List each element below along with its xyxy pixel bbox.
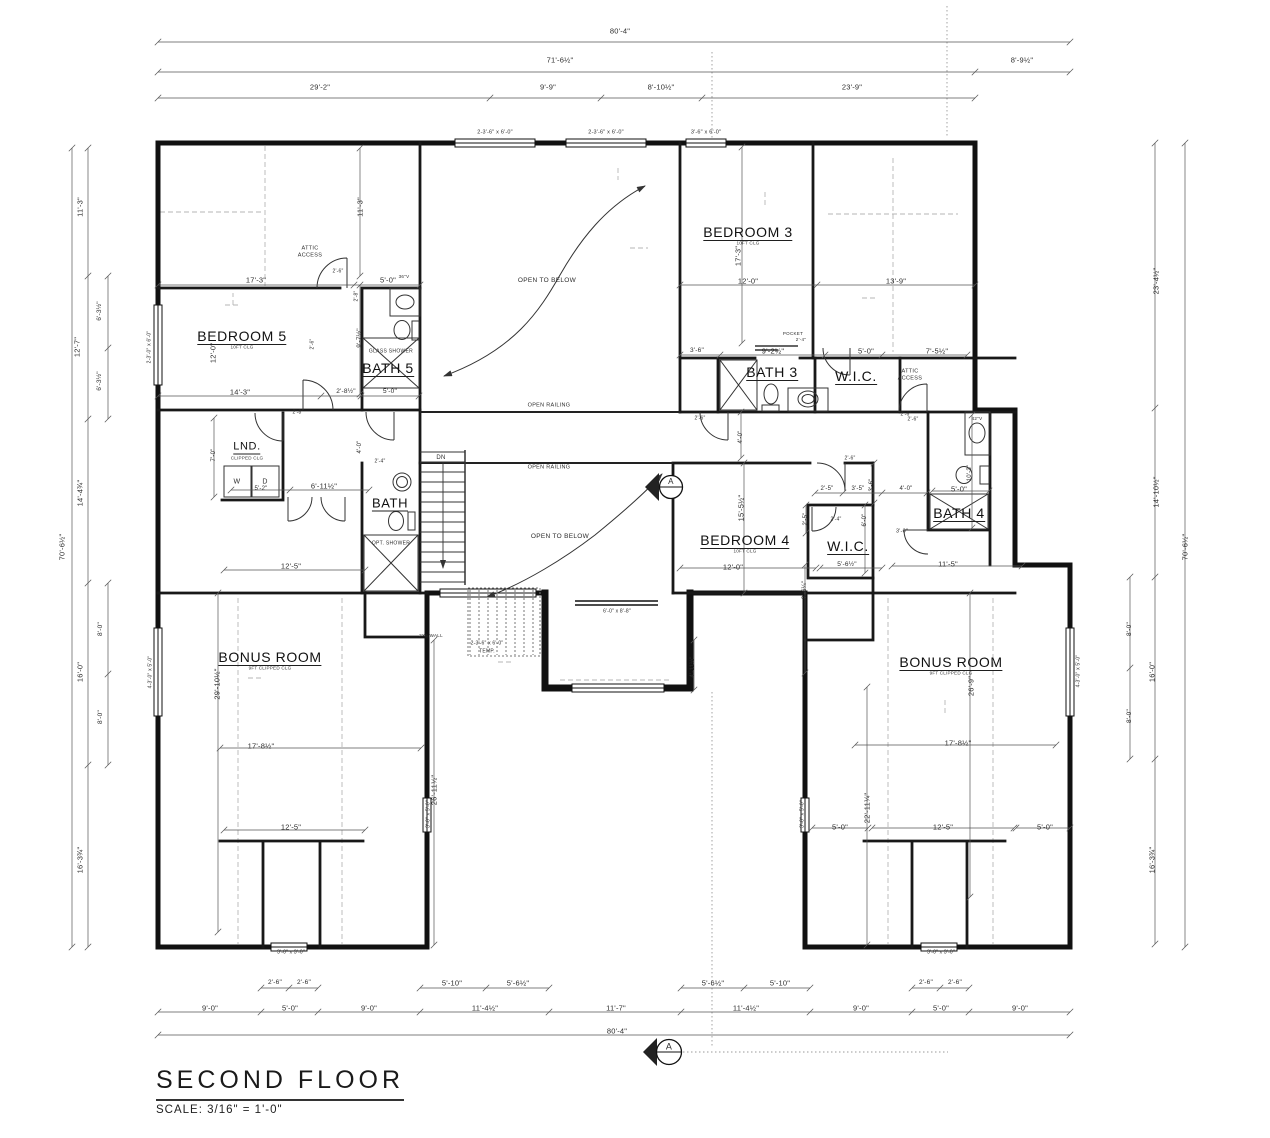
dimension-label: 2'-6"	[333, 270, 344, 275]
dimension-label: 8'-0"	[1127, 709, 1134, 723]
dimension-label: 7'-5½"	[926, 347, 948, 355]
dimension-label: 9'-0"	[361, 1004, 377, 1012]
dimension-label: 6'-0"	[862, 514, 868, 527]
dimension-label: 16'-0"	[76, 662, 84, 682]
dimension-label: 5'-0"	[832, 823, 848, 831]
dimension-label: 3'-0" x 5'-0"	[427, 800, 432, 828]
annotation-label: A	[666, 1043, 672, 1052]
dimension-label: 17'-3"	[734, 246, 742, 266]
dimension-label: 11'-3"	[76, 197, 84, 217]
dimension-label: 2'-6"	[311, 339, 316, 350]
room-ceiling-note: 9FT CLIPPED CLG	[249, 667, 292, 672]
annotation-label: OPEN RAILING	[528, 403, 571, 409]
label-layer: BEDROOM 510FT CLGBATH 5BEDROOM 310FT CLG…	[0, 0, 1270, 1138]
dimension-label: 2'-5"	[803, 513, 809, 526]
room-label: BATH 3	[746, 365, 798, 381]
room-label: BATH	[372, 497, 408, 512]
annotation-label: ACCESS	[298, 253, 322, 259]
room-label: BONUS ROOM	[218, 650, 321, 666]
dimension-label: 3'-0"	[896, 529, 908, 535]
dimension-label: 2'-6"	[901, 413, 912, 418]
room-ceiling-note: 10FT CLG	[231, 346, 254, 351]
annotation-label: OPEN TO BELOW	[518, 278, 576, 285]
dimension-label: 2'-6"	[695, 417, 706, 422]
annotation-label: OPEN TO BELOW	[531, 534, 589, 541]
annotation-label: OPEN RAILING	[528, 465, 571, 471]
dimension-label: 3'-0" x 3'-0"	[277, 951, 305, 956]
dimension-label: 5'-0"	[282, 1004, 298, 1012]
dimension-label: 8'-9½"	[1011, 56, 1033, 64]
annotation-label: ATTIC	[302, 246, 319, 252]
dimension-label: 4'-0"	[357, 441, 363, 454]
dimension-label: 3'-6"	[869, 479, 875, 492]
room-ceiling-note: 10FT CLG	[734, 550, 757, 555]
dimension-label: 8'-0"	[1127, 622, 1134, 636]
dimension-label: 2'-6"	[919, 980, 933, 987]
dimension-label: 12'-5"	[281, 823, 301, 831]
dimension-label: 4-3'-0" x 5'-0"	[1077, 655, 1082, 688]
room-label: W.I.C.	[827, 539, 869, 555]
dimension-label: 80'-4"	[610, 27, 630, 35]
dimension-label: 12'-7"	[73, 337, 81, 357]
dimension-label: 2'-8"	[355, 291, 360, 302]
dimension-label: 5'-0"	[951, 485, 967, 493]
dimension-label: 3'-0" x 3'-0"	[927, 951, 955, 956]
dimension-label: 7'-0"	[211, 449, 217, 462]
dimension-label: 29'-10½"	[213, 668, 221, 699]
dimension-label: 2-3'-0" x 6'-0"	[148, 331, 153, 364]
dimension-label: 11'-7"	[606, 1004, 626, 1012]
dimension-label: TEMP.	[479, 650, 495, 655]
dimension-label: 2'-6"	[948, 980, 962, 987]
dimension-label: 9'-0"	[853, 1004, 869, 1012]
drawing-title: SECOND FLOOR	[156, 1066, 404, 1101]
dimension-label: 4'-11½"	[690, 656, 696, 677]
dimension-label: 2-3'-6" x 6'-0"	[477, 130, 513, 136]
room-label: BEDROOM 4	[700, 533, 789, 549]
dimension-label: 23'-4½"	[1152, 268, 1160, 295]
dimension-label: 3'-6" x 6'-0"	[691, 130, 721, 136]
dimension-label: 9'-2½"	[762, 347, 784, 355]
dimension-label: 2'-6"	[908, 418, 919, 423]
dimension-label: 5'-10"	[770, 979, 790, 987]
dimension-label: 3'-6"	[690, 348, 704, 355]
dimension-label: 2'-6"	[845, 457, 856, 462]
room-label: BEDROOM 3	[703, 225, 792, 241]
dimension-label: 4'-0"	[900, 486, 913, 492]
dimension-label: 71'-6½"	[547, 56, 574, 64]
dimension-label: 70'-6½"	[1181, 534, 1189, 561]
dimension-label: 14'-3"	[230, 388, 250, 396]
room-label: W.I.C.	[835, 369, 877, 385]
annotation-label: DN	[436, 455, 445, 461]
annotation-label: W	[234, 479, 241, 486]
dimension-label: 5'-10"	[442, 979, 462, 987]
annotation-label: 2'-4"	[796, 338, 806, 343]
dimension-label: 5'-2"	[255, 486, 268, 492]
room-label: BATH 4	[933, 506, 985, 522]
annotation-label: ACCESS	[898, 376, 922, 382]
dimension-label: 17'-8½"	[248, 742, 275, 750]
dimension-label: 5'-0"	[933, 1004, 949, 1012]
dimension-label: 2-3'-6" x 6'-0"	[471, 642, 504, 647]
dimension-label: 17'-8½"	[945, 739, 972, 747]
dimension-label: 2-3'-6" x 6'-0"	[588, 130, 624, 136]
annotation-label: D	[262, 479, 267, 486]
dimension-label: 2'-4"	[831, 518, 842, 523]
dimension-label: 6'-3½"	[97, 301, 104, 321]
dimension-label: 17'-3"	[246, 276, 266, 284]
dimension-label: 29'-2"	[310, 83, 330, 91]
room-label: LND.	[233, 442, 260, 455]
dimension-label: 11'-4½"	[472, 1004, 498, 1012]
dimension-label: 12'-0"	[723, 563, 743, 571]
dimension-label: 9'-7½"	[357, 328, 364, 348]
dimension-label: 5'-6½"	[702, 979, 724, 987]
dimension-label: 16'-3¾"	[1148, 847, 1156, 874]
dimension-label: 6'-3½"	[97, 371, 104, 391]
dimension-label: 26'-9"	[967, 676, 975, 696]
dimension-label: 5'-0"	[383, 389, 397, 396]
dimension-label: 5'-0"	[380, 276, 396, 284]
dimension-label: 22'-11¼"	[863, 793, 871, 824]
dimension-label: 12'-0"	[209, 343, 217, 363]
floorplan-sheet: BEDROOM 510FT CLGBATH 5BEDROOM 310FT CLG…	[0, 0, 1270, 1138]
dimension-label: 16'-0"	[1148, 662, 1156, 682]
dimension-label: 8'-10½"	[648, 83, 675, 91]
annotation-label: 2X6 WALL	[419, 634, 443, 639]
dimension-label: 2'-6"	[297, 980, 311, 987]
dimension-label: 14'-10½"	[1152, 476, 1160, 507]
dimension-label: 12'-0"	[738, 277, 758, 285]
dimension-label: 23'-9"	[842, 83, 862, 91]
dimension-label: 8'-0"	[98, 710, 105, 724]
dimension-label: 9'-6¼"	[802, 581, 808, 599]
dimension-label: 12'-5"	[281, 562, 301, 570]
annotation-label: POCKET	[783, 332, 803, 337]
room-ceiling-note: CLIPPED CLG	[231, 457, 264, 462]
dimension-label: 13'-9"	[886, 277, 906, 285]
dimension-label: 80'-4"	[607, 1027, 627, 1035]
drawing-scale: SCALE: 3/16" = 1'-0"	[156, 1104, 404, 1116]
dimension-label: 12'-5"	[933, 823, 953, 831]
annotation-label: GLASS SHOWER	[369, 350, 413, 355]
dimension-label: 5'-0"	[858, 347, 874, 355]
dimension-label: 11'-3"	[356, 197, 364, 217]
room-label: BATH 5	[362, 361, 414, 377]
dimension-label: 9'-9"	[540, 83, 556, 91]
dimension-label: 15'-5½"	[737, 495, 745, 522]
dimension-label: 4'-0"	[738, 431, 744, 444]
annotation-label: OPT. SHOWER	[372, 542, 410, 547]
annotation-label: 36"V	[399, 275, 410, 280]
dimension-label: 16'-3¾"	[76, 847, 84, 874]
dimension-label: 11'-4½"	[733, 1004, 759, 1012]
dimension-label: 4-3'-0" x 5'-0"	[149, 656, 154, 689]
dimension-label: 2'-6"	[268, 980, 282, 987]
annotation-label: 42"V	[972, 417, 983, 422]
dimension-label: 11'-5"	[938, 560, 958, 568]
dimension-label: 9'-0"	[1012, 1004, 1028, 1012]
dimension-label: 3'-5"	[852, 486, 865, 492]
dimension-label: 70'-6½"	[58, 534, 66, 561]
title-block: SECOND FLOOR SCALE: 3/16" = 1'-0"	[156, 1066, 404, 1116]
dimension-label: 8'-0"	[98, 622, 105, 636]
annotation-label: A	[668, 478, 674, 486]
dimension-label: 5'-6½"	[837, 562, 857, 569]
dimension-label: 6'-11½"	[311, 482, 337, 490]
dimension-label: 5'-0"	[1037, 823, 1053, 831]
dimension-label: 2'-5"	[821, 486, 834, 492]
dimension-label: 14'-4¾"	[76, 480, 84, 507]
room-label: BONUS ROOM	[899, 655, 1002, 671]
dimension-label: 2'-4"	[375, 460, 386, 465]
annotation-label: ATTIC	[902, 369, 919, 375]
dimension-label: 9'-0"	[202, 1004, 218, 1012]
dimension-label: 2'-8"	[293, 411, 304, 416]
dimension-label: 2'-8½"	[336, 389, 356, 396]
dimension-label: 3'-0" x 5'-0"	[801, 800, 806, 828]
dimension-label: 10'-3"	[967, 465, 973, 481]
dimension-label: 5'-6½"	[507, 979, 529, 987]
dimension-label: 6'-0" x 8'-8"	[603, 610, 631, 615]
